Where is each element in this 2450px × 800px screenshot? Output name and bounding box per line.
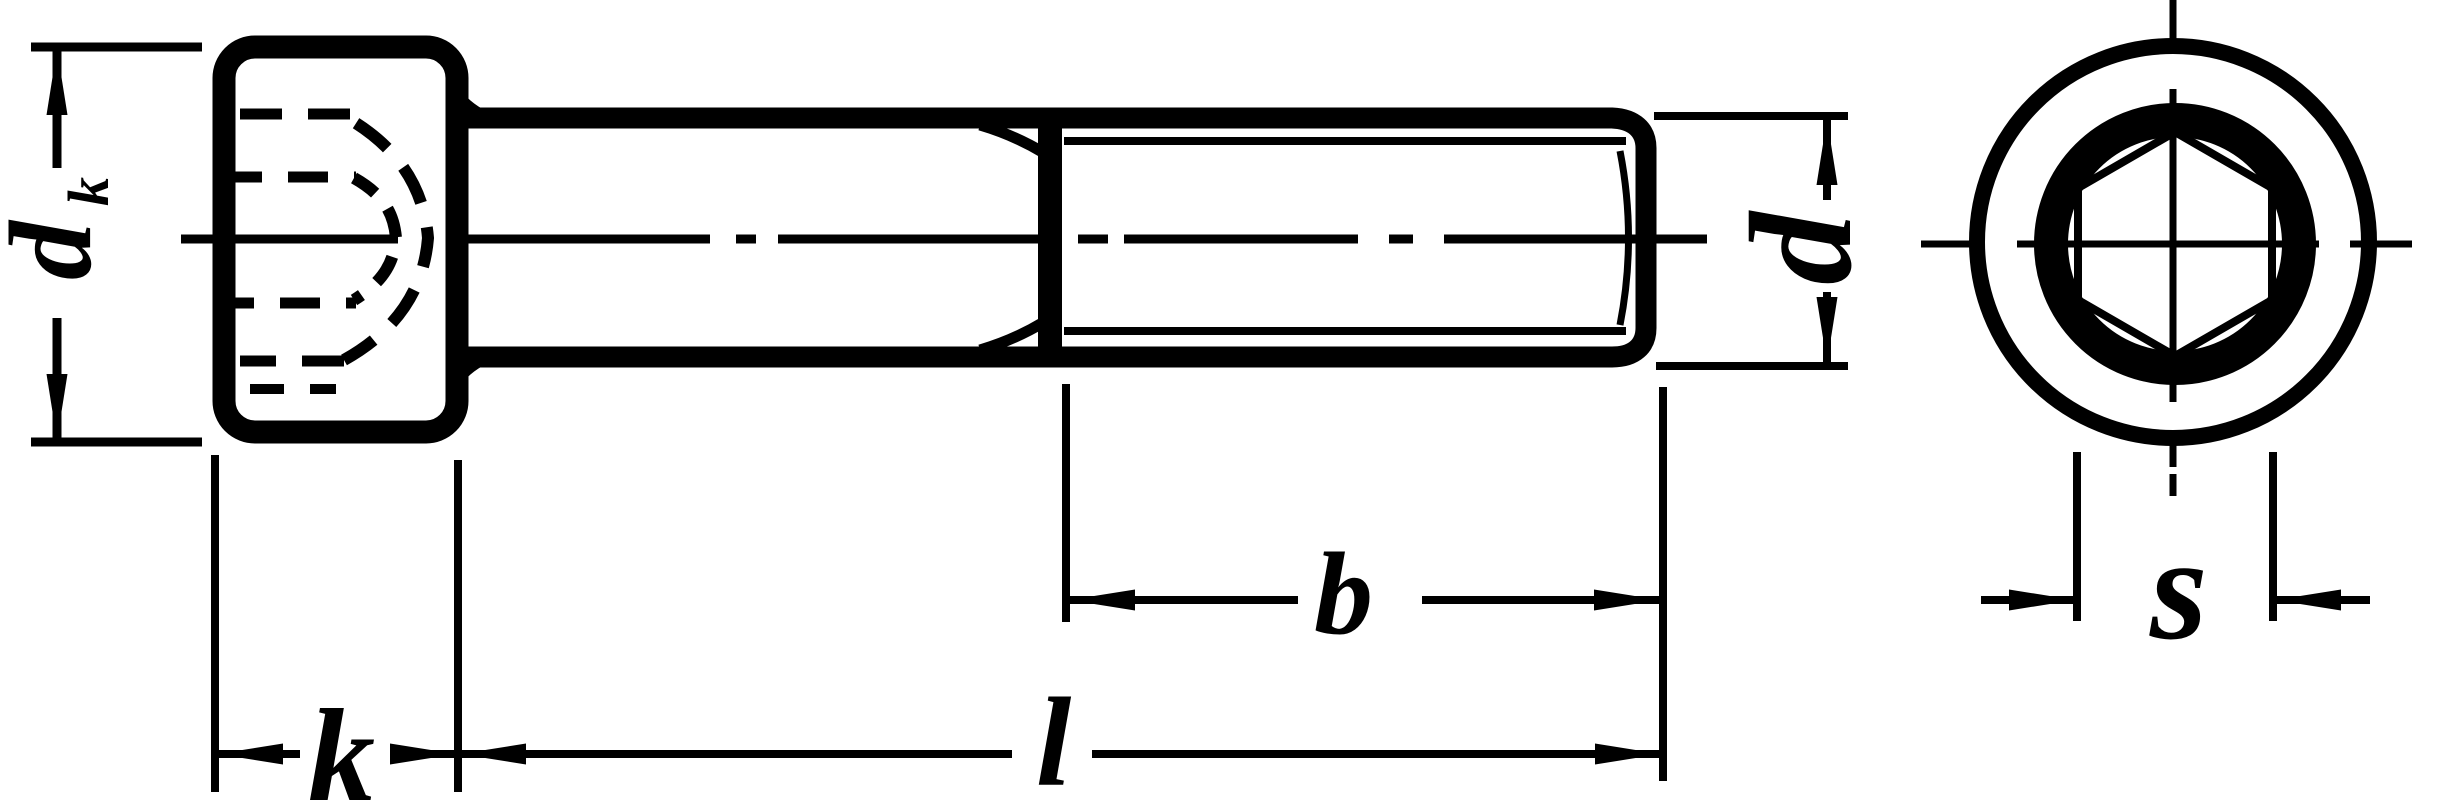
svg-text:d: d xyxy=(1720,210,1882,285)
svg-text:s: s xyxy=(2149,507,2208,671)
svg-text:b: b xyxy=(1314,528,1373,659)
svg-text:k: k xyxy=(56,177,121,206)
svg-text:d: d xyxy=(0,219,116,280)
svg-text:k: k xyxy=(308,682,375,800)
svg-text:l: l xyxy=(1036,673,1072,800)
